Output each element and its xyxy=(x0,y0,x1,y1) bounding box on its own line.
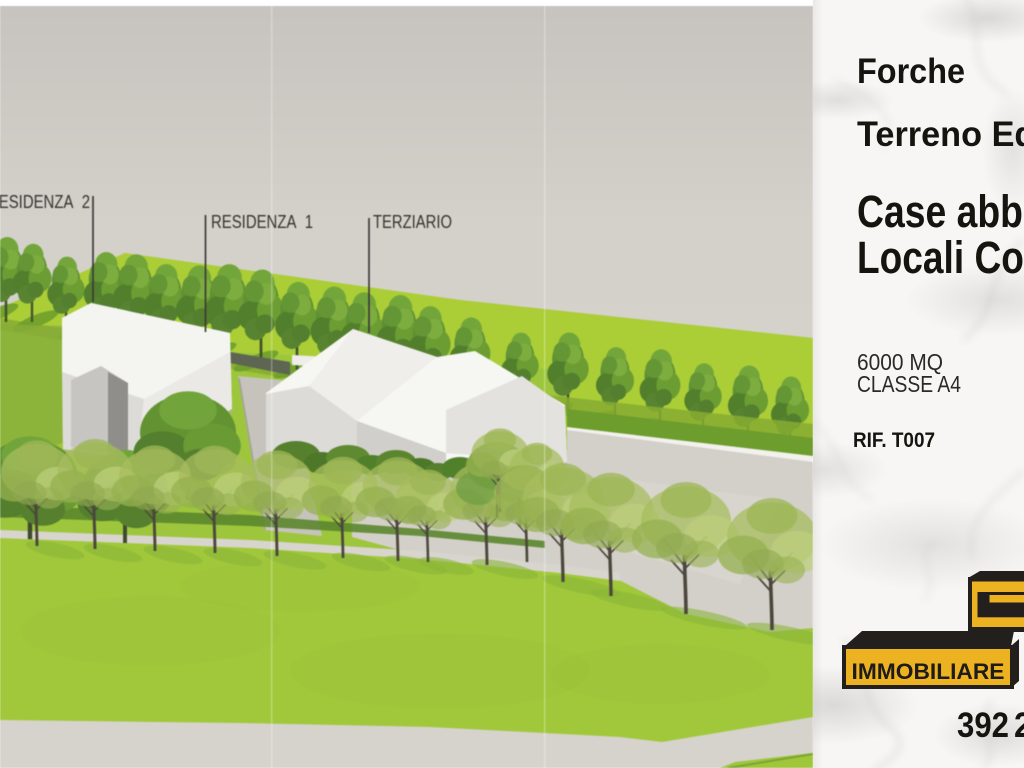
svg-text:39228: 39228 xyxy=(957,706,1024,745)
svg-text:IMMOBILIARE: IMMOBILIARE xyxy=(852,659,1005,684)
svg-text:RESIDENZA 2: RESIDENZA 2 xyxy=(0,192,90,212)
svg-text:RESIDENZA 1: RESIDENZA 1 xyxy=(211,212,313,232)
svg-text:Terreno Edificabile: Terreno Edificabile xyxy=(857,115,1024,154)
svg-text:RIF. T007: RIF. T007 xyxy=(853,429,935,452)
svg-text:Case abbinate: Case abbinate xyxy=(857,186,1024,237)
svg-text:Forche: Forche xyxy=(857,52,965,91)
svg-text:Locali Commerciali: Locali Commerciali xyxy=(857,232,1024,283)
svg-text:CLASSE A4: CLASSE A4 xyxy=(857,371,961,397)
svg-text:TERZIARIO: TERZIARIO xyxy=(373,212,452,232)
